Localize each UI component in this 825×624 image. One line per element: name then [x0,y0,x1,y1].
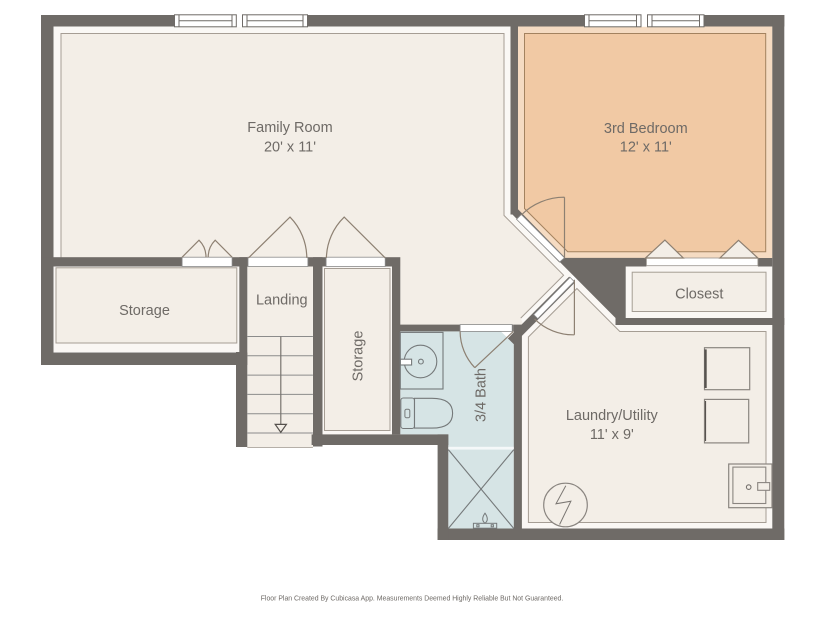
svg-text:Family Room: Family Room [247,120,332,136]
svg-text:Floor Plan Created By Cubicasa: Floor Plan Created By Cubicasa App. Meas… [261,596,564,603]
svg-text:12' x 11': 12' x 11' [620,140,672,156]
svg-text:Storage: Storage [119,303,170,319]
svg-text:3rd Bedroom: 3rd Bedroom [604,121,688,137]
svg-text:11' x 9': 11' x 9' [590,427,634,443]
svg-text:Laundry/Utility: Laundry/Utility [566,408,659,424]
svg-text:Storage: Storage [351,331,367,382]
svg-text:3/4 Bath: 3/4 Bath [474,368,490,422]
svg-text:Landing: Landing [256,293,308,309]
svg-text:Closest: Closest [675,287,723,303]
svg-text:20' x 11': 20' x 11' [264,140,316,156]
